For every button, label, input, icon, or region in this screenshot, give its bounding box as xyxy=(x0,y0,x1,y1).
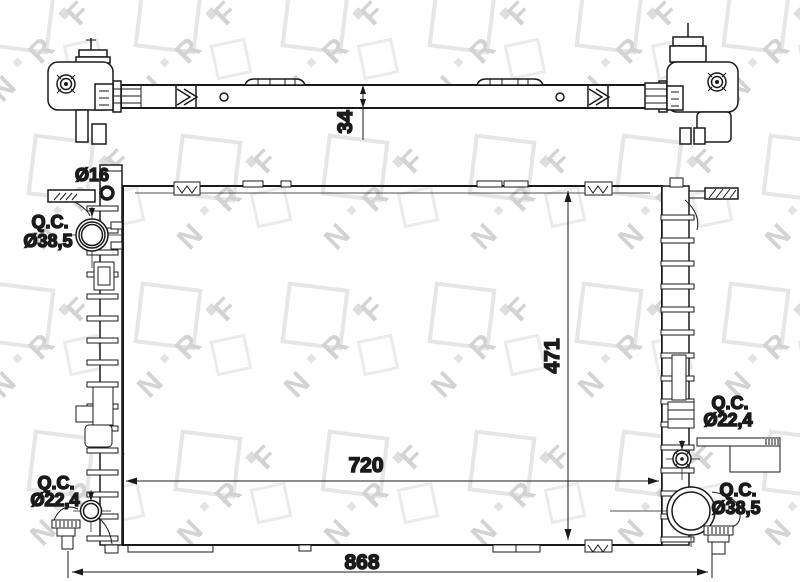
right-tank-bracket xyxy=(685,188,738,230)
core-clip-bottom xyxy=(585,540,612,552)
dim-height-value: 471 xyxy=(541,338,564,373)
core-clip-top-right xyxy=(585,182,612,195)
bar-bracket-right xyxy=(477,79,543,85)
top-view-bar xyxy=(113,79,667,112)
svg-text:Q.C.: Q.C. xyxy=(31,212,68,232)
dim-thickness-value: 34 xyxy=(334,110,357,134)
left-tank-mid-bracket xyxy=(76,387,113,447)
front-view: 471 720 868 Ø16 Q.C. Ø38,5 xyxy=(23,165,780,578)
drawing-canvas: N R FN R FN R FN R FN R FN R FN R FN R F… xyxy=(0,0,800,582)
port-top-left-ring xyxy=(101,187,113,199)
bar-bracket-left xyxy=(245,79,305,85)
label-port-top-left: Ø16 xyxy=(75,165,109,185)
label-port-left-upper: Q.C. Ø38,5 xyxy=(23,212,72,251)
svg-text:Q.C.: Q.C. xyxy=(719,480,756,500)
technical-drawing: 34 xyxy=(0,0,800,582)
svg-text:Ø38,5: Ø38,5 xyxy=(711,498,760,518)
svg-text:Ø22,4: Ø22,4 xyxy=(703,410,752,430)
dim-overall-width-value: 868 xyxy=(344,551,379,574)
svg-text:Ø22,4: Ø22,4 xyxy=(30,490,79,510)
left-drain-plug xyxy=(52,520,80,549)
label-port-right-lower: Q.C. Ø38,5 xyxy=(711,480,760,518)
radiator-core xyxy=(123,181,662,552)
dimension-720: 720 xyxy=(126,454,659,485)
right-drain-plug xyxy=(704,526,733,554)
dimension-471: 471 xyxy=(541,191,572,540)
top-view-right-fitting xyxy=(645,23,738,144)
dim-core-width-value: 720 xyxy=(348,454,383,477)
top-view: 34 xyxy=(48,23,738,144)
label-port-left-lower: Q.C. Ø22,4 xyxy=(30,473,79,510)
svg-text:Ø38,5: Ø38,5 xyxy=(23,231,72,251)
label-port-right-upper: Q.C. Ø22,4 xyxy=(703,393,752,430)
dimension-868: 868 xyxy=(68,551,712,578)
core-clip-top-left xyxy=(174,182,200,195)
